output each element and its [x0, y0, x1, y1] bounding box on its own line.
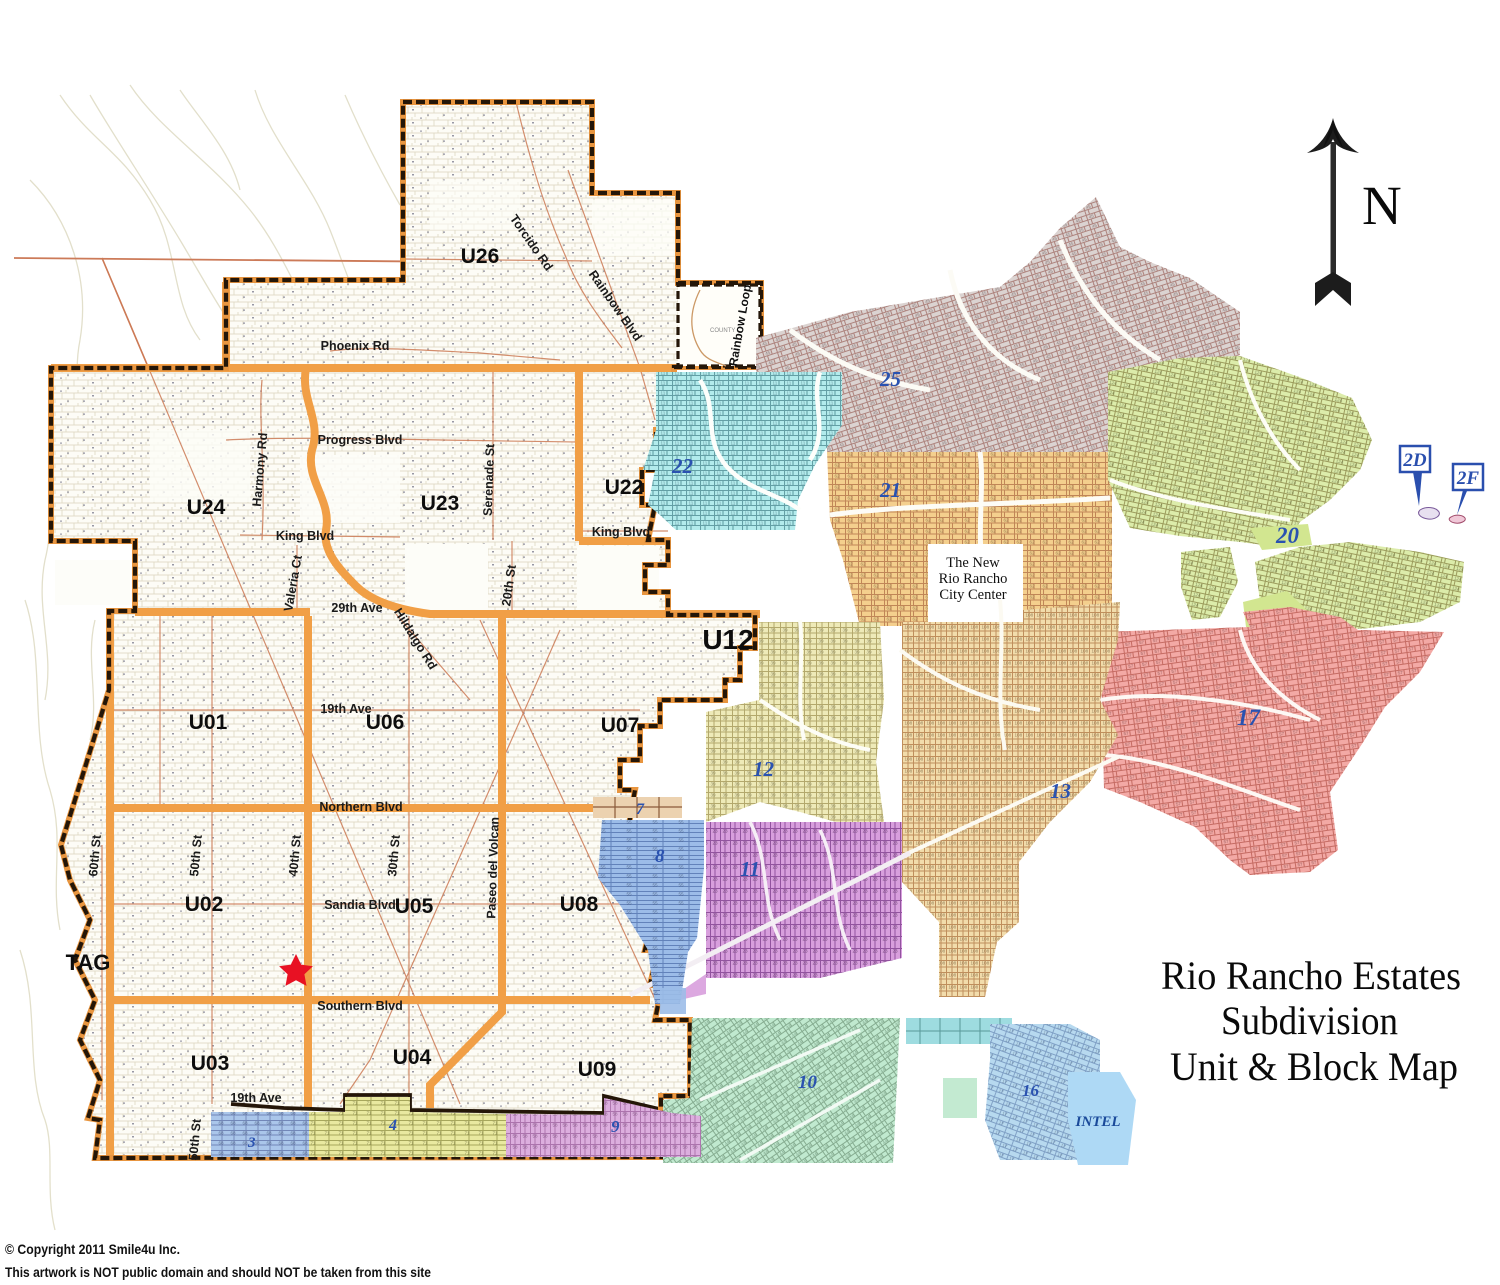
svg-text:U12: U12	[702, 624, 753, 655]
svg-text:U04: U04	[393, 1046, 432, 1069]
svg-text:13: 13	[1050, 779, 1071, 803]
svg-text:U26: U26	[461, 245, 500, 268]
svg-text:Serenade St: Serenade St	[481, 443, 498, 517]
svg-text:12: 12	[753, 757, 775, 781]
svg-text:29th Ave: 29th Ave	[331, 601, 382, 615]
svg-text:19th Ave: 19th Ave	[230, 1091, 281, 1105]
svg-text:N: N	[1362, 175, 1402, 236]
svg-text:U23: U23	[421, 492, 460, 515]
svg-text:U03: U03	[191, 1052, 230, 1075]
svg-text:Sandia Blvd: Sandia Blvd	[324, 898, 396, 912]
svg-text:17: 17	[1237, 705, 1262, 730]
svg-text:The New: The New	[946, 555, 1000, 571]
svg-text:Northern Blvd: Northern Blvd	[319, 800, 402, 814]
svg-text:This artwork is NOT public dom: This artwork is NOT public domain and sh…	[5, 1265, 431, 1280]
svg-text:7: 7	[636, 801, 645, 818]
svg-text:10: 10	[798, 1072, 818, 1093]
svg-text:8: 8	[655, 846, 665, 867]
svg-text:U09: U09	[578, 1058, 617, 1081]
svg-text:© Copyright 2011 Smile4u Inc.: © Copyright 2011 Smile4u Inc.	[5, 1242, 180, 1257]
svg-text:U02: U02	[185, 893, 224, 916]
svg-text:U22: U22	[605, 476, 644, 499]
svg-text:Phoenix Rd: Phoenix Rd	[321, 339, 390, 353]
svg-text:2F: 2F	[1456, 468, 1480, 489]
svg-text:Rio Rancho: Rio Rancho	[939, 571, 1008, 587]
svg-text:Subdivision: Subdivision	[1221, 998, 1398, 1043]
svg-text:Rio Rancho Estates: Rio Rancho Estates	[1161, 953, 1461, 998]
svg-text:City Center: City Center	[939, 587, 1006, 603]
svg-text:9: 9	[611, 1117, 620, 1136]
svg-text:3: 3	[247, 1135, 256, 1151]
svg-text:22: 22	[671, 454, 694, 478]
svg-text:Progress Blvd: Progress Blvd	[318, 433, 403, 447]
svg-text:11: 11	[740, 857, 760, 881]
svg-text:TAG: TAG	[66, 950, 111, 975]
svg-text:COUNTY: COUNTY	[710, 328, 735, 334]
svg-text:U08: U08	[560, 893, 599, 916]
svg-text:Unit & Block Map: Unit & Block Map	[1170, 1044, 1458, 1089]
svg-text:4: 4	[388, 1117, 397, 1134]
svg-text:U24: U24	[187, 496, 226, 519]
svg-text:21: 21	[879, 478, 901, 502]
svg-text:2D: 2D	[1402, 450, 1427, 471]
svg-text:U01: U01	[189, 711, 228, 734]
svg-text:20: 20	[1275, 523, 1300, 548]
svg-text:Southern Blvd: Southern Blvd	[317, 999, 402, 1013]
svg-text:16: 16	[1022, 1081, 1040, 1100]
svg-text:19th Ave: 19th Ave	[320, 702, 371, 716]
svg-text:25: 25	[879, 367, 901, 391]
svg-text:King Blvd: King Blvd	[276, 529, 334, 543]
svg-text:INTEL: INTEL	[1075, 1114, 1121, 1130]
svg-text:U07: U07	[601, 714, 640, 737]
svg-text:U05: U05	[395, 895, 434, 918]
svg-text:King Blvd: King Blvd	[592, 525, 650, 539]
